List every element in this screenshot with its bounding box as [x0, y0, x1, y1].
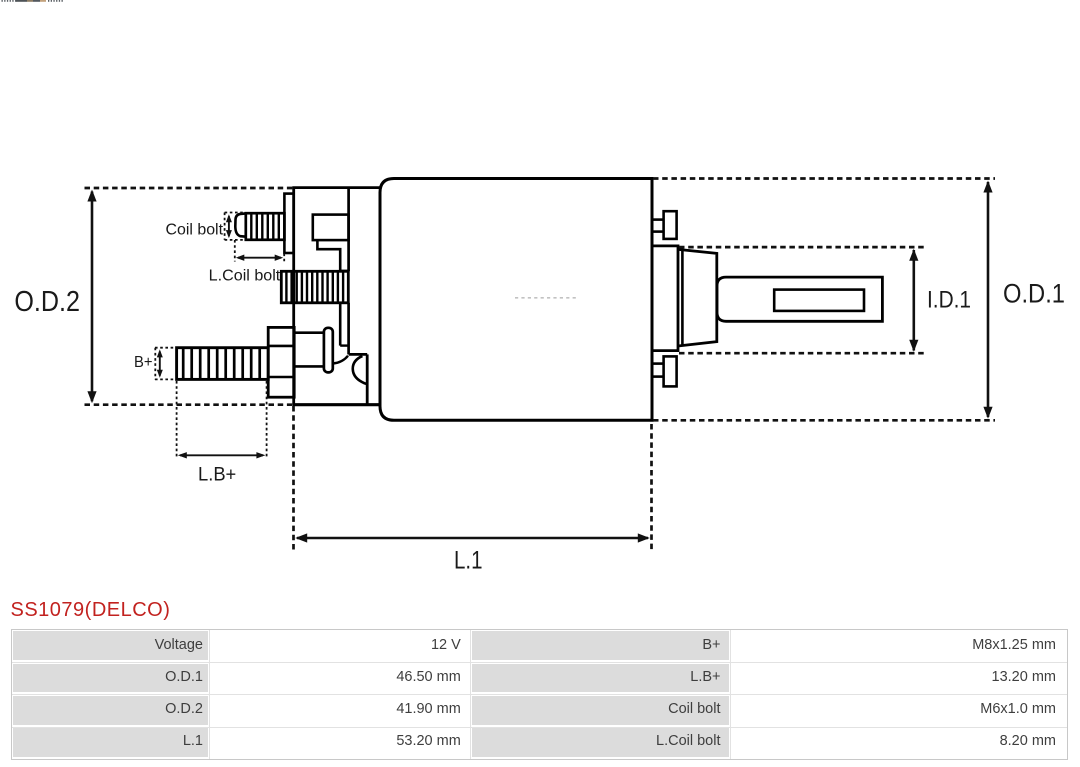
- svg-text:Coil bolt: Coil bolt: [166, 221, 224, 238]
- svg-text:O.D.2: O.D.2: [14, 286, 80, 318]
- svg-text:I.D.1: I.D.1: [927, 287, 971, 314]
- svg-text:L.Coil bolt: L.Coil bolt: [209, 268, 281, 285]
- svg-text:O.D.1: O.D.1: [1003, 279, 1065, 309]
- svg-text:L.1: L.1: [454, 546, 483, 574]
- svg-text:L.B+: L.B+: [198, 463, 236, 485]
- svg-text:B+: B+: [134, 354, 153, 371]
